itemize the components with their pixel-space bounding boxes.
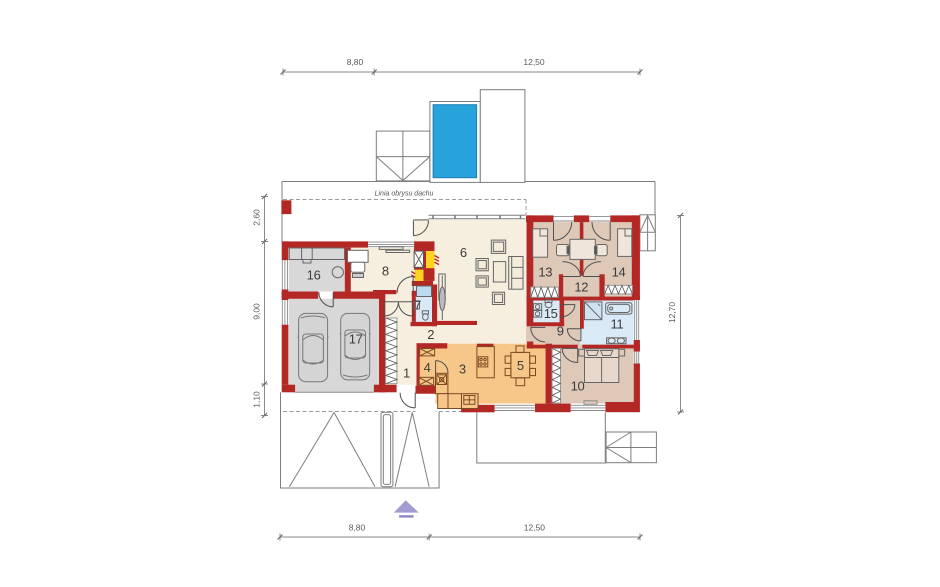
svg-text:1,10: 1,10 (252, 391, 262, 408)
svg-text:12,50: 12,50 (524, 523, 546, 533)
svg-text:5: 5 (517, 358, 524, 373)
svg-text:12,50: 12,50 (523, 57, 545, 67)
svg-text:10: 10 (571, 379, 585, 394)
svg-text:13: 13 (538, 265, 552, 280)
svg-text:11: 11 (610, 316, 623, 331)
svg-text:Linia obrysu dachu: Linia obrysu dachu (375, 191, 434, 198)
svg-text:2: 2 (427, 327, 434, 342)
svg-text:8,80: 8,80 (349, 523, 366, 533)
svg-text:9: 9 (557, 324, 564, 339)
svg-text:15: 15 (544, 306, 558, 321)
svg-text:8: 8 (382, 263, 389, 278)
svg-text:14: 14 (612, 265, 626, 280)
svg-text:2,60: 2,60 (252, 209, 262, 226)
svg-text:17: 17 (349, 332, 363, 347)
svg-text:12,70: 12,70 (667, 302, 677, 324)
svg-text:7: 7 (414, 298, 421, 313)
svg-text:9,00: 9,00 (252, 303, 262, 320)
svg-text:4: 4 (424, 360, 431, 375)
svg-text:6: 6 (460, 245, 467, 260)
svg-text:8,80: 8,80 (347, 57, 364, 67)
svg-text:1: 1 (403, 366, 410, 381)
svg-text:3: 3 (459, 362, 466, 377)
svg-text:12: 12 (574, 279, 588, 294)
svg-text:16: 16 (307, 267, 321, 282)
